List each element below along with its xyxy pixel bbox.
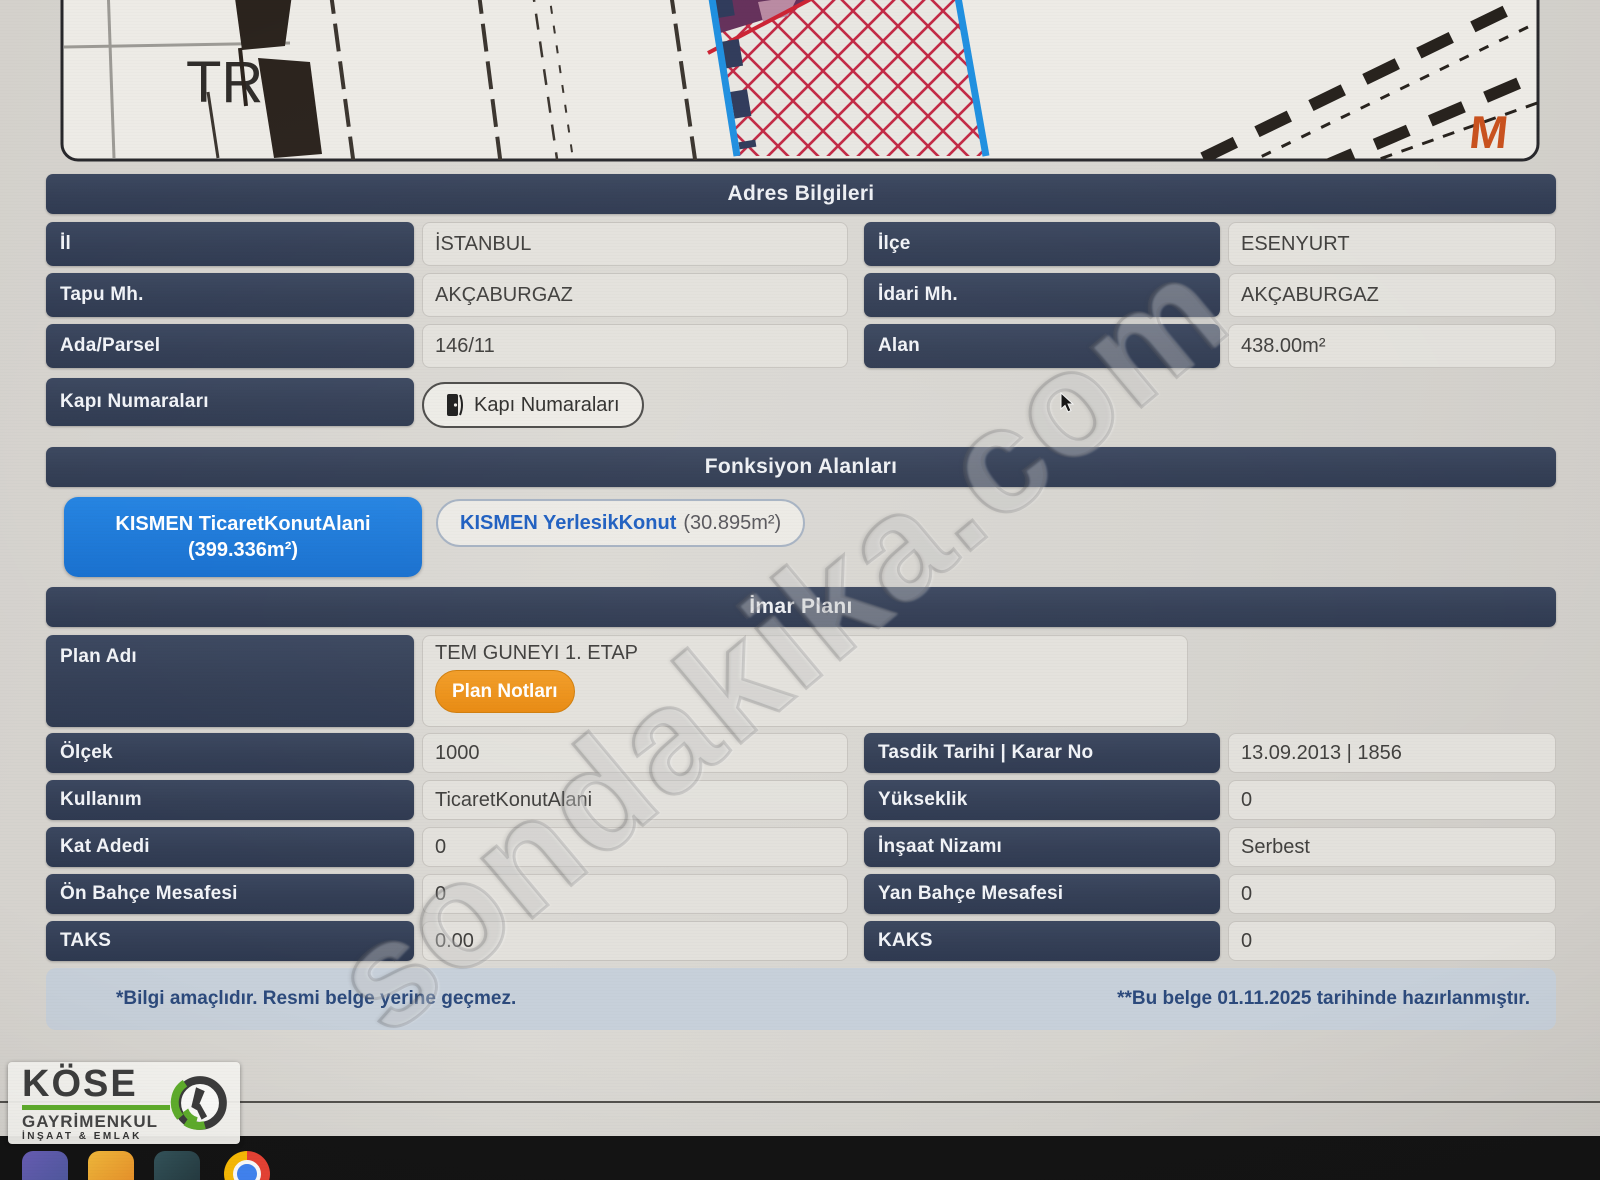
map-label-tr: TR bbox=[186, 50, 263, 115]
label-yan-bahce-mesafesi: Yan Bahçe Mesafesi bbox=[864, 874, 1220, 914]
fonksiyon-button-yerlesik-konut[interactable]: KISMEN YerlesikKonut (30.895m²) bbox=[436, 499, 805, 547]
label-il: İl bbox=[46, 222, 414, 266]
door-icon bbox=[446, 393, 465, 417]
table-row: İl İSTANBUL İlçe ESENYURT bbox=[46, 222, 1556, 266]
label-ilce: İlçe bbox=[864, 222, 1220, 266]
value-tapu-mh: AKÇABURGAZ bbox=[422, 273, 848, 317]
value-il: İSTANBUL bbox=[422, 222, 848, 266]
cadastral-map[interactable]: TR bbox=[58, 0, 1542, 164]
label-kullanim: Kullanım bbox=[46, 780, 414, 820]
parcel-query-screenshot: TR bbox=[0, 0, 1600, 1180]
table-row: Ölçek 1000 Tasdik Tarihi | Karar No 13.0… bbox=[46, 733, 1556, 773]
taskbar-app-icon[interactable] bbox=[88, 1151, 134, 1180]
agency-logo-card: KÖSE GAYRİMENKUL İNŞAAT & EMLAK bbox=[8, 1062, 240, 1144]
label-alan: Alan bbox=[864, 324, 1220, 368]
value-kullanim: TicaretKonutAlani bbox=[422, 780, 848, 820]
label-on-bahce-mesafesi: Ön Bahçe Mesafesi bbox=[46, 874, 414, 914]
value-yukseklik: 0 bbox=[1228, 780, 1556, 820]
footer-disclaimer-bar: *Bilgi amaçlıdır. Resmi belge yerine geç… bbox=[46, 968, 1556, 1030]
label-plan-adi: Plan Adı bbox=[46, 635, 414, 727]
window-bottom-edge bbox=[0, 1101, 1600, 1103]
value-ilce: ESENYURT bbox=[1228, 222, 1556, 266]
fonksiyon-buttons-row: KISMEN TicaretKonutAlani (399.336m²) KIS… bbox=[46, 497, 1556, 579]
label-kapi-numaralari: Kapı Numaraları bbox=[46, 378, 414, 426]
label-yukseklik: Yükseklik bbox=[864, 780, 1220, 820]
taskbar-app-icon[interactable] bbox=[154, 1151, 200, 1180]
label-tapu-mh: Tapu Mh. bbox=[46, 273, 414, 317]
table-row: Ada/Parsel 146/11 Alan 438.00m² bbox=[46, 324, 1556, 368]
kapi-numaralari-button[interactable]: Kapı Numaraları bbox=[422, 382, 644, 428]
taskbar-app-icon[interactable] bbox=[22, 1151, 68, 1180]
table-row: Plan Adı TEM GUNEYI 1. ETAP Plan Notları bbox=[46, 635, 1556, 727]
value-olcek: 1000 bbox=[422, 733, 848, 773]
logo-underline bbox=[22, 1105, 170, 1110]
section-title: Adres Bilgileri bbox=[728, 182, 875, 206]
value-kaks: 0 bbox=[1228, 921, 1556, 961]
value-on-bahce-mesafesi: 0 bbox=[422, 874, 848, 914]
map-provider-m-icon: M bbox=[1467, 106, 1511, 158]
table-row: Kullanım TicaretKonutAlani Yükseklik 0 bbox=[46, 780, 1556, 820]
section-header-imar: İmar Planı bbox=[46, 587, 1556, 627]
label-kaks: KAKS bbox=[864, 921, 1220, 961]
section-title: Fonksiyon Alanları bbox=[705, 455, 898, 479]
value-idari-mh: AKÇABURGAZ bbox=[1228, 273, 1556, 317]
value-tasdik-tarihi-karar-no: 13.09.2013 | 1856 bbox=[1228, 733, 1556, 773]
selected-parcel[interactable] bbox=[708, 0, 986, 156]
kose-emblem-icon bbox=[170, 1067, 230, 1139]
mouse-cursor bbox=[1060, 392, 1078, 414]
table-row: Kapı Numaraları Kapı Numaraları bbox=[46, 378, 1556, 432]
label-olcek: Ölçek bbox=[46, 733, 414, 773]
logo-line3: İNŞAAT & EMLAK bbox=[22, 1132, 142, 1142]
value-alan: 438.00m² bbox=[1228, 324, 1556, 368]
table-row: Ön Bahçe Mesafesi 0 Yan Bahçe Mesafesi 0 bbox=[46, 874, 1556, 914]
label-idari-mh: İdari Mh. bbox=[864, 273, 1220, 317]
map-canvas[interactable]: TR bbox=[58, 0, 1542, 164]
plan-notlari-button[interactable]: Plan Notları bbox=[435, 670, 575, 713]
fonksiyon-button-ticaret-konut-alani[interactable]: KISMEN TicaretKonutAlani (399.336m²) bbox=[64, 497, 422, 577]
table-row: Tapu Mh. AKÇABURGAZ İdari Mh. AKÇABURGAZ bbox=[46, 273, 1556, 317]
section-title: İmar Planı bbox=[749, 595, 852, 619]
label-taks: TAKS bbox=[46, 921, 414, 961]
section-header-fonksiyon: Fonksiyon Alanları bbox=[46, 447, 1556, 487]
table-row: Kat Adedi 0 İnşaat Nizamı Serbest bbox=[46, 827, 1556, 867]
document-date-text: **Bu belge 01.11.2025 tarihinde hazırlan… bbox=[1117, 988, 1530, 1010]
value-yan-bahce-mesafesi: 0 bbox=[1228, 874, 1556, 914]
table-row: TAKS 0.00 KAKS 0 bbox=[46, 921, 1556, 961]
logo-name: KÖSE bbox=[22, 1065, 138, 1103]
label-insaat-nizami: İnşaat Nizamı bbox=[864, 827, 1220, 867]
value-plan-adi: TEM GUNEYI 1. ETAP Plan Notları bbox=[422, 635, 1188, 727]
agency-logo-text: KÖSE GAYRİMENKUL İNŞAAT & EMLAK bbox=[22, 1065, 170, 1142]
value-ada-parsel: 146/11 bbox=[422, 324, 848, 368]
section-header-adres: Adres Bilgileri bbox=[46, 174, 1556, 214]
label-ada-parsel: Ada/Parsel bbox=[46, 324, 414, 368]
logo-line2: GAYRİMENKUL bbox=[22, 1113, 158, 1130]
label-tasdik-tarihi-karar-no: Tasdik Tarihi | Karar No bbox=[864, 733, 1220, 773]
value-insaat-nizami: Serbest bbox=[1228, 827, 1556, 867]
plan-adi-text: TEM GUNEYI 1. ETAP bbox=[435, 642, 638, 665]
value-kat-adedi: 0 bbox=[422, 827, 848, 867]
disclaimer-text: *Bilgi amaçlıdır. Resmi belge yerine geç… bbox=[116, 988, 516, 1010]
value-taks: 0.00 bbox=[422, 921, 848, 961]
label-kat-adedi: Kat Adedi bbox=[46, 827, 414, 867]
